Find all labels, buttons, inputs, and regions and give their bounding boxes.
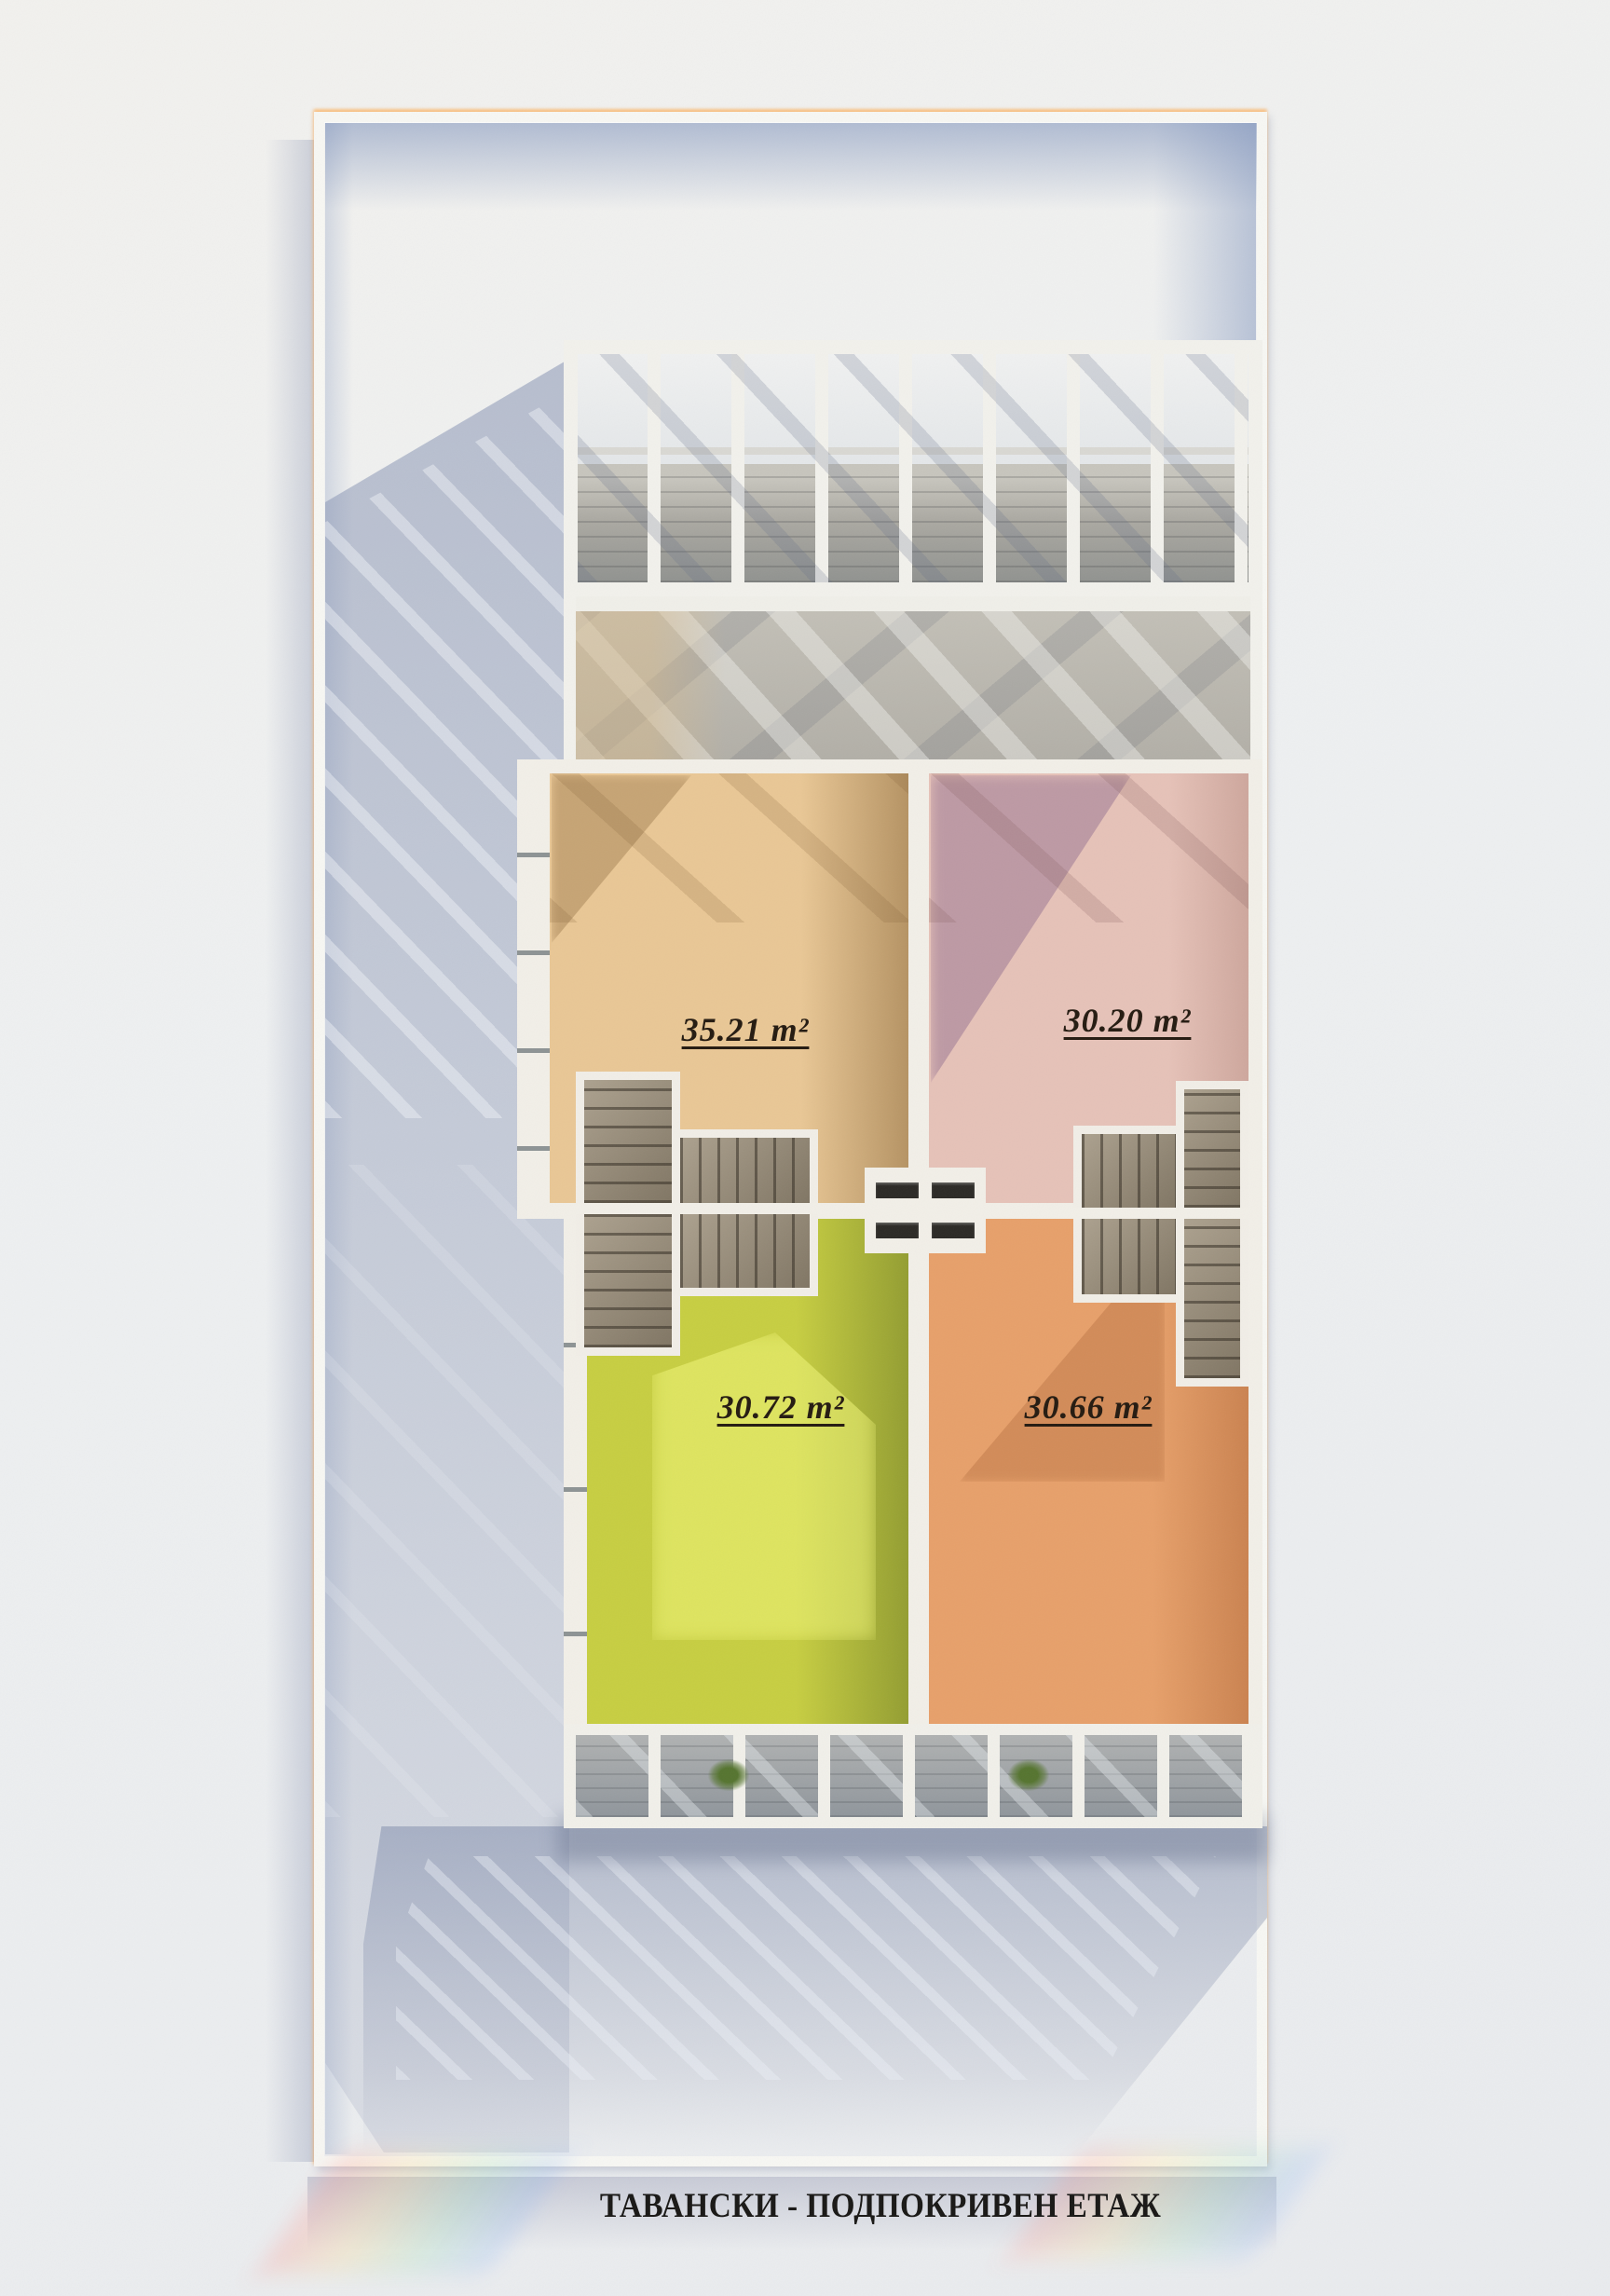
beam-shadows-top-left-unit: [550, 773, 908, 922]
area-label-top-left: 35.21 m²: [682, 1010, 810, 1049]
south-balcony: [564, 1724, 1262, 1828]
wall-west-upper-windows: [517, 759, 550, 1214]
floor-plan-sheet: 35.21 m² 30.20 m² 30.72 m² 30.66 m² ТАВА…: [0, 0, 1610, 2296]
wall-north: [517, 759, 1262, 773]
area-label-bottom-left: 30.72 m²: [717, 1387, 845, 1427]
stair-bottom-left-winder: [680, 1214, 818, 1296]
refraction-ghost-left: [255, 2152, 573, 2274]
stair-top-right-winder: [1073, 1126, 1176, 1208]
area-label-top-right: 30.20 m²: [1064, 1001, 1192, 1040]
railing-shadow-stripes-left-lower: [325, 1165, 569, 1817]
central-lightwell: [865, 1168, 986, 1253]
stair-top-left-flight: [576, 1072, 680, 1203]
beam-shadows-top-right-unit: [929, 773, 1248, 922]
roof-slope-strip: [564, 596, 1262, 759]
railing-shadow-stripes-bottom: [396, 1856, 1216, 2080]
stair-bottom-left-flight: [576, 1214, 680, 1356]
stair-bottom-right-winder: [1073, 1219, 1176, 1303]
roof-terrace-pergola: [564, 340, 1262, 596]
frame-inner-right-shadow: [1153, 123, 1256, 345]
wall-east: [1248, 759, 1262, 1724]
area-label-bottom-right: 30.66 m²: [1025, 1387, 1153, 1427]
frame-inner-top-shadow: [325, 123, 1257, 211]
frame-outer-left-shadow: [266, 140, 316, 2162]
sheet-title: ТАВАНСКИ - ПОДПОКРИВЕН ЕТАЖ: [553, 2186, 1207, 2226]
balcony-plant: [1008, 1759, 1049, 1791]
lightwell-opening: [932, 1182, 975, 1198]
stair-bottom-right-flight: [1176, 1219, 1248, 1387]
roof-strip-wall: [576, 596, 1250, 611]
lightwell-opening: [876, 1223, 919, 1238]
balcony-railing-posts: [564, 1724, 1262, 1828]
stair-top-left-winder: [680, 1129, 818, 1203]
lightwell-opening: [932, 1223, 975, 1238]
stair-top-right-flight: [1176, 1081, 1248, 1208]
pergola-diagonal-shadows: [578, 354, 1248, 582]
balcony-plant: [708, 1759, 749, 1791]
lightwell-opening: [876, 1182, 919, 1198]
